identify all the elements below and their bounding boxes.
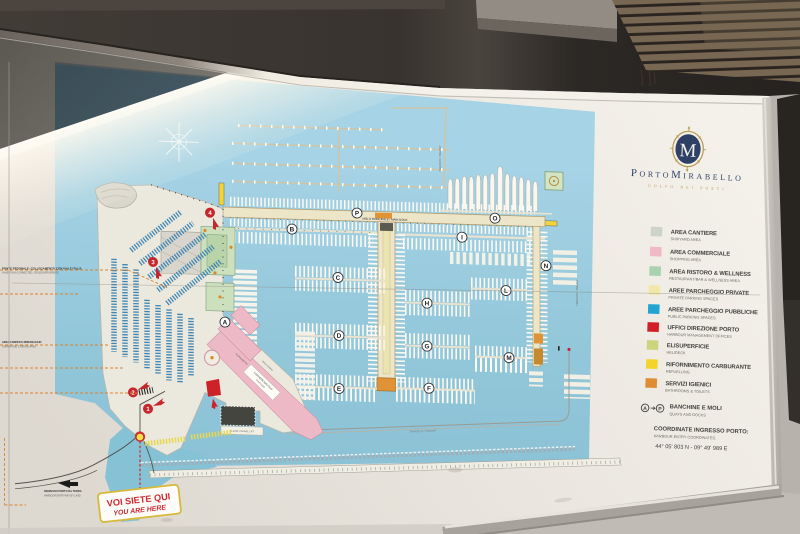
svg-text:O: O [493,215,498,222]
svg-text:AREA CAMPER E RIMESSAGGIO: AREA CAMPER E RIMESSAGGIO [2,341,42,344]
svg-text:M: M [679,140,697,162]
svg-text:INGRESSO PORTO DA TERRA: INGRESSO PORTO DA TERRA [44,489,82,493]
svg-text:D: D [337,333,342,340]
svg-text:REFUELLING: REFUELLING [666,370,690,375]
svg-text:N: N [544,263,549,270]
svg-text:G: G [425,343,430,350]
svg-text:E: E [337,386,342,393]
svg-text:I: I [461,234,463,241]
svg-text:H: H [425,300,430,307]
svg-text:P: P [355,210,360,217]
svg-text:VIALE ITALIA CONNECTED, CROSSO: VIALE ITALIA CONNECTED, CROSSOVER BRIDGE [2,272,59,275]
svg-text:A: A [223,319,228,326]
svg-text:TRANSITO / TRANSIT: TRANSITO / TRANSIT [438,145,442,172]
svg-text:B: B [290,226,295,233]
svg-text:HELIDECK: HELIDECK [666,351,686,356]
svg-text:M: M [506,355,511,362]
svg-text:C: C [336,275,341,282]
svg-text:PONTE PEDONALE: COLLEGAMENTO C: PONTE PEDONALE: COLLEGAMENTO CON VIALE I… [2,267,82,271]
svg-text:A: A [643,406,647,412]
svg-text:CAMPER AND STORAGE AREA: CAMPER AND STORAGE AREA [2,346,36,349]
svg-text:F: F [427,385,431,392]
svg-text:HARBOUR ENTRYWAY BY LAND: HARBOUR ENTRYWAY BY LAND [44,495,81,498]
